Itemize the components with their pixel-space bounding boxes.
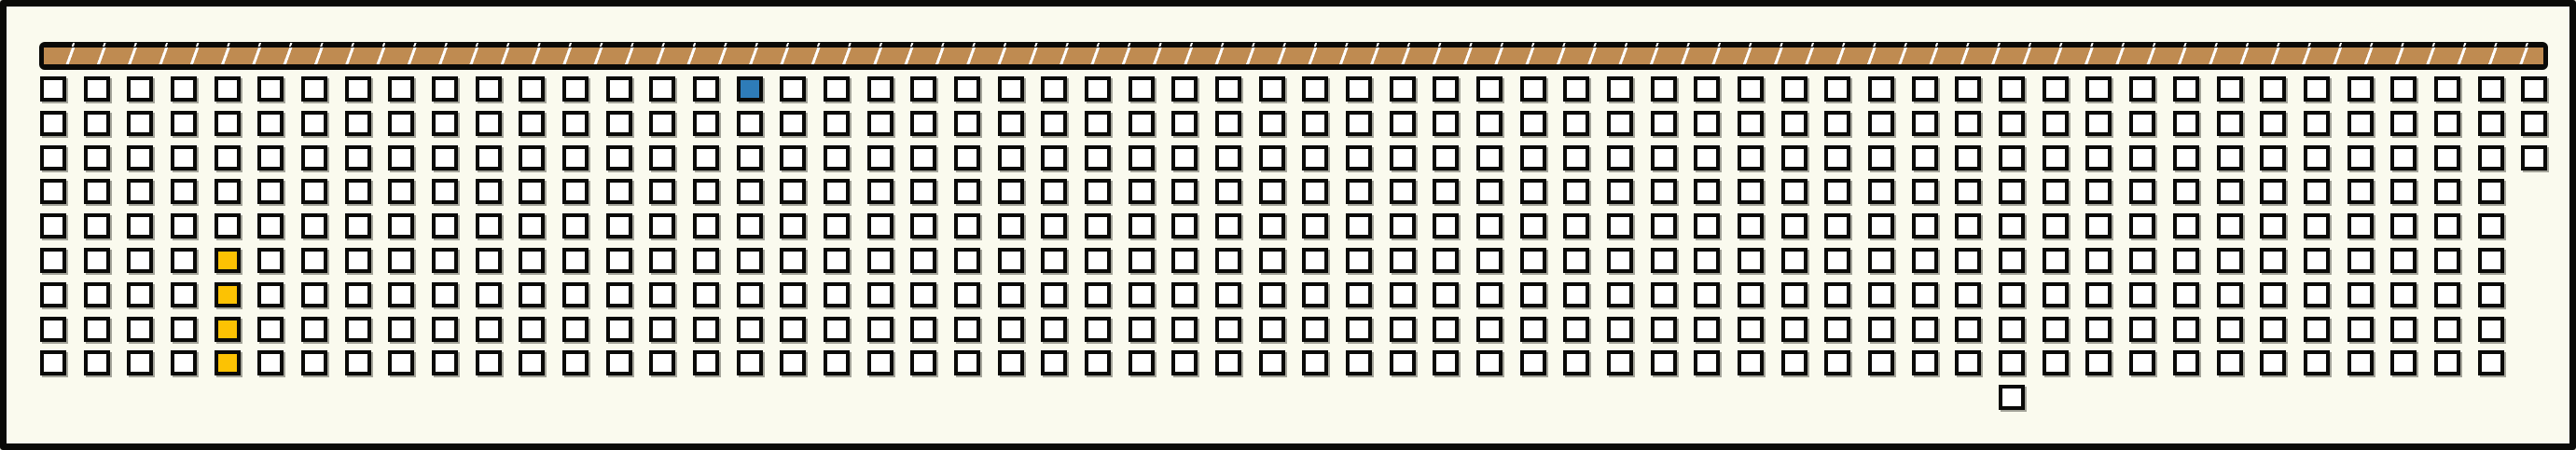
grid-cell[interactable] — [780, 282, 806, 307]
grid-cell[interactable] — [998, 282, 1024, 307]
grid-cell[interactable] — [2043, 179, 2069, 204]
grid-cell[interactable] — [1868, 350, 1894, 375]
grid-cell[interactable] — [432, 76, 458, 102]
grid-cell[interactable] — [998, 179, 1024, 204]
grid-cell[interactable] — [257, 213, 284, 239]
grid-cell[interactable] — [1171, 145, 1198, 170]
grid-cell[interactable] — [1085, 317, 1111, 342]
grid-cell[interactable] — [1390, 111, 1416, 136]
grid-cell[interactable] — [954, 145, 980, 170]
grid-cell[interactable] — [1390, 248, 1416, 273]
grid-cell[interactable] — [2173, 111, 2199, 136]
grid-cell[interactable] — [171, 213, 197, 239]
grid-cell[interactable] — [1912, 145, 1938, 170]
grid-cell[interactable] — [84, 213, 110, 239]
grid-cell[interactable] — [476, 248, 502, 273]
grid-cell[interactable] — [2434, 145, 2460, 170]
grid-cell[interactable] — [954, 111, 980, 136]
grid-cell[interactable] — [2217, 145, 2243, 170]
grid-cell[interactable] — [1824, 248, 1850, 273]
grid-cell[interactable] — [2390, 76, 2417, 102]
grid-cell[interactable] — [824, 282, 850, 307]
grid-cell[interactable] — [910, 317, 936, 342]
grid-cell[interactable] — [1868, 282, 1894, 307]
grid-cell[interactable] — [1651, 282, 1677, 307]
grid-cell[interactable] — [2260, 76, 2286, 102]
grid-cell[interactable] — [693, 317, 719, 342]
grid-cell[interactable] — [824, 213, 850, 239]
grid-cell[interactable] — [345, 282, 371, 307]
grid-cell[interactable] — [867, 282, 893, 307]
grid-cell[interactable] — [2304, 145, 2330, 170]
grid-cell[interactable] — [1085, 179, 1111, 204]
grid-cell[interactable] — [2260, 248, 2286, 273]
grid-cell[interactable] — [693, 145, 719, 170]
grid-cell[interactable] — [1738, 350, 1764, 375]
grid-cell[interactable] — [1346, 179, 1372, 204]
grid-cell[interactable] — [215, 213, 241, 239]
grid-cell[interactable] — [1607, 111, 1633, 136]
grid-cell[interactable] — [910, 179, 936, 204]
grid-cell[interactable] — [649, 76, 675, 102]
grid-cell[interactable] — [432, 111, 458, 136]
grid-cell[interactable] — [1085, 282, 1111, 307]
grid-cell[interactable] — [476, 179, 502, 204]
grid-cell[interactable] — [1215, 248, 1241, 273]
grid-cell[interactable] — [301, 76, 327, 102]
grid-cell[interactable] — [1999, 145, 2025, 170]
grid-cell[interactable] — [345, 213, 371, 239]
grid-cell[interactable] — [1259, 248, 1285, 273]
grid-cell[interactable] — [867, 145, 893, 170]
grid-cell[interactable] — [562, 111, 589, 136]
grid-cell[interactable] — [40, 282, 66, 307]
grid-cell[interactable] — [2390, 350, 2417, 375]
grid-cell[interactable] — [2217, 248, 2243, 273]
grid-cell[interactable] — [1738, 213, 1764, 239]
grid-cell[interactable] — [2478, 76, 2504, 102]
grid-cell[interactable] — [257, 179, 284, 204]
grid-cell[interactable] — [1390, 213, 1416, 239]
grid-cell[interactable] — [2434, 350, 2460, 375]
grid-cell[interactable] — [954, 179, 980, 204]
grid-cell[interactable] — [1476, 111, 1503, 136]
grid-cell[interactable] — [954, 76, 980, 102]
grid-cell[interactable] — [2129, 248, 2155, 273]
grid-cell[interactable] — [1520, 145, 1546, 170]
grid-cell[interactable] — [1651, 179, 1677, 204]
grid-cell[interactable] — [1651, 350, 1677, 375]
grid-cell[interactable] — [2173, 350, 2199, 375]
grid-cell[interactable] — [2304, 248, 2330, 273]
grid-cell[interactable] — [2043, 317, 2069, 342]
grid-cell[interactable] — [84, 76, 110, 102]
grid-cell[interactable] — [780, 145, 806, 170]
grid-cell[interactable] — [649, 282, 675, 307]
grid-cell[interactable] — [40, 248, 66, 273]
grid-cell[interactable] — [1868, 145, 1894, 170]
grid-cell[interactable] — [737, 248, 763, 273]
grid-cell[interactable] — [2085, 350, 2112, 375]
grid-cell[interactable] — [2347, 111, 2374, 136]
grid-cell[interactable] — [910, 282, 936, 307]
grid-cell[interactable] — [84, 248, 110, 273]
grid-cell[interactable] — [2434, 282, 2460, 307]
grid-cell[interactable] — [1781, 213, 1807, 239]
grid-cell[interactable] — [476, 76, 502, 102]
grid-cell[interactable] — [345, 317, 371, 342]
grid-cell[interactable] — [1476, 248, 1503, 273]
grid-cell[interactable] — [693, 248, 719, 273]
grid-cell[interactable] — [171, 282, 197, 307]
grid-cell[interactable] — [824, 145, 850, 170]
grid-cell[interactable] — [2173, 145, 2199, 170]
grid-cell[interactable] — [1476, 317, 1503, 342]
grid-cell[interactable] — [388, 350, 414, 375]
grid-cell[interactable] — [780, 350, 806, 375]
grid-cell[interactable] — [2085, 317, 2112, 342]
grid-cell[interactable] — [1868, 111, 1894, 136]
grid-cell[interactable] — [1824, 350, 1850, 375]
grid-cell[interactable] — [2521, 145, 2547, 170]
grid-cell[interactable] — [867, 350, 893, 375]
grid-cell[interactable] — [2129, 76, 2155, 102]
grid-cell[interactable] — [1781, 76, 1807, 102]
grid-cell[interactable] — [606, 317, 632, 342]
grid-cell[interactable] — [606, 179, 632, 204]
grid-cell[interactable] — [2521, 111, 2547, 136]
grid-cell[interactable] — [1999, 317, 2025, 342]
grid-cell[interactable] — [1955, 145, 1981, 170]
grid-cell[interactable] — [910, 111, 936, 136]
grid-cell[interactable] — [1259, 76, 1285, 102]
grid-cell[interactable] — [388, 145, 414, 170]
grid-cell[interactable] — [2217, 111, 2243, 136]
grid-cell[interactable] — [1302, 282, 1328, 307]
grid-cell[interactable] — [301, 282, 327, 307]
grid-cell[interactable] — [1302, 145, 1328, 170]
grid-cell[interactable] — [2217, 213, 2243, 239]
grid-cell[interactable] — [1129, 213, 1155, 239]
grid-cell[interactable] — [84, 111, 110, 136]
grid-cell[interactable] — [737, 145, 763, 170]
grid-cell[interactable] — [867, 248, 893, 273]
grid-cell[interactable] — [1259, 282, 1285, 307]
grid-cell[interactable] — [171, 76, 197, 102]
grid-cell[interactable] — [388, 248, 414, 273]
grid-cell[interactable] — [2304, 350, 2330, 375]
grid-cell[interactable] — [1824, 317, 1850, 342]
grid-cell[interactable] — [2478, 248, 2504, 273]
grid-cell[interactable] — [2173, 213, 2199, 239]
grid-cell[interactable] — [737, 179, 763, 204]
grid-cell[interactable] — [1433, 179, 1459, 204]
grid-cell[interactable] — [1476, 76, 1503, 102]
grid-cell[interactable] — [780, 76, 806, 102]
grid-cell[interactable] — [649, 350, 675, 375]
grid-cell[interactable] — [215, 179, 241, 204]
grid-cell[interactable] — [476, 213, 502, 239]
grid-cell[interactable] — [780, 213, 806, 239]
grid-cell[interactable] — [1390, 350, 1416, 375]
grid-cell[interactable] — [910, 145, 936, 170]
grid-cell[interactable] — [519, 213, 545, 239]
grid-cell[interactable] — [1955, 76, 1981, 102]
grid-cell[interactable] — [1912, 248, 1938, 273]
grid-cell[interactable] — [127, 213, 153, 239]
grid-cell[interactable] — [1520, 248, 1546, 273]
grid-cell[interactable] — [519, 179, 545, 204]
grid-cell[interactable] — [954, 317, 980, 342]
grid-cell[interactable] — [1955, 282, 1981, 307]
grid-cell[interactable] — [127, 248, 153, 273]
grid-cell[interactable] — [2260, 282, 2286, 307]
grid-cell[interactable] — [2390, 248, 2417, 273]
grid-cell[interactable] — [1520, 282, 1546, 307]
grid-cell[interactable] — [1999, 248, 2025, 273]
grid-cell[interactable] — [562, 248, 589, 273]
grid-cell[interactable] — [2304, 282, 2330, 307]
grid-cell[interactable] — [2085, 248, 2112, 273]
grid-cell[interactable] — [2129, 350, 2155, 375]
grid-cell[interactable] — [127, 111, 153, 136]
grid-cell[interactable] — [2347, 76, 2374, 102]
grid-cell[interactable] — [1302, 213, 1328, 239]
grid-cell[interactable] — [1390, 179, 1416, 204]
grid-cell[interactable] — [1433, 317, 1459, 342]
grid-cell[interactable] — [215, 111, 241, 136]
grid-cell[interactable] — [345, 350, 371, 375]
grid-cell[interactable] — [1651, 248, 1677, 273]
grid-cell[interactable] — [388, 282, 414, 307]
grid-cell[interactable] — [1912, 350, 1938, 375]
grid-cell[interactable] — [301, 111, 327, 136]
grid-cell[interactable] — [910, 76, 936, 102]
grid-cell[interactable] — [476, 111, 502, 136]
grid-cell[interactable] — [780, 111, 806, 136]
grid-cell[interactable] — [1694, 76, 1720, 102]
grid-cell[interactable] — [2304, 111, 2330, 136]
grid-cell[interactable] — [2434, 111, 2460, 136]
grid-cell[interactable] — [2478, 282, 2504, 307]
grid-cell[interactable] — [1476, 282, 1503, 307]
grid-cell[interactable] — [824, 317, 850, 342]
grid-cell[interactable] — [127, 282, 153, 307]
grid-cell[interactable] — [1999, 179, 2025, 204]
grid-cell[interactable] — [1259, 350, 1285, 375]
grid-cell[interactable] — [2173, 179, 2199, 204]
grid-cell[interactable] — [301, 145, 327, 170]
grid-cell[interactable] — [1651, 317, 1677, 342]
grid-cell[interactable] — [2521, 76, 2547, 102]
grid-cell[interactable] — [1433, 350, 1459, 375]
grid-cell[interactable] — [1824, 282, 1850, 307]
grid-cell[interactable] — [1085, 213, 1111, 239]
grid-cell[interactable] — [1259, 111, 1285, 136]
grid-cell[interactable] — [2260, 145, 2286, 170]
grid-cell[interactable] — [1781, 145, 1807, 170]
grid-cell[interactable] — [1171, 282, 1198, 307]
grid-cell[interactable] — [1607, 213, 1633, 239]
grid-cell[interactable] — [649, 145, 675, 170]
grid-cell[interactable] — [2173, 248, 2199, 273]
grid-cell[interactable] — [562, 317, 589, 342]
grid-cell[interactable] — [1738, 282, 1764, 307]
grid-cell[interactable] — [649, 248, 675, 273]
grid-cell[interactable] — [1129, 317, 1155, 342]
grid-cell[interactable] — [1781, 179, 1807, 204]
grid-cell[interactable] — [954, 350, 980, 375]
grid-cell[interactable] — [1041, 76, 1067, 102]
grid-cell[interactable] — [1563, 145, 1589, 170]
grid-cell[interactable] — [1563, 76, 1589, 102]
grid-cell[interactable] — [257, 145, 284, 170]
grid-cell[interactable] — [2085, 76, 2112, 102]
grid-cell[interactable] — [1912, 282, 1938, 307]
grid-cell[interactable] — [998, 76, 1024, 102]
grid-cell[interactable] — [2217, 76, 2243, 102]
grid-cell-yellow[interactable] — [215, 350, 241, 375]
grid-cell[interactable] — [1912, 179, 1938, 204]
grid-cell[interactable] — [1738, 179, 1764, 204]
grid-cell[interactable] — [1433, 145, 1459, 170]
grid-cell[interactable] — [562, 145, 589, 170]
grid-cell[interactable] — [2347, 145, 2374, 170]
grid-cell[interactable] — [1999, 76, 2025, 102]
grid-cell[interactable] — [1520, 213, 1546, 239]
grid-cell[interactable] — [1738, 248, 1764, 273]
grid-cell[interactable] — [2390, 317, 2417, 342]
grid-cell[interactable] — [2085, 145, 2112, 170]
grid-cell[interactable] — [1999, 282, 2025, 307]
grid-cell[interactable] — [2043, 248, 2069, 273]
grid-cell[interactable] — [2390, 145, 2417, 170]
grid-cell[interactable] — [1738, 145, 1764, 170]
grid-cell[interactable] — [1955, 179, 1981, 204]
grid-cell[interactable] — [1215, 350, 1241, 375]
grid-cell[interactable] — [2390, 213, 2417, 239]
grid-cell[interactable] — [693, 350, 719, 375]
grid-cell[interactable] — [1781, 248, 1807, 273]
grid-cell[interactable] — [1171, 248, 1198, 273]
grid-cell[interactable] — [1738, 76, 1764, 102]
grid-cell[interactable] — [1694, 282, 1720, 307]
grid-cell[interactable] — [2129, 282, 2155, 307]
grid-cell[interactable] — [1912, 111, 1938, 136]
grid-cell[interactable] — [1999, 111, 2025, 136]
grid-cell[interactable] — [2347, 213, 2374, 239]
grid-cell[interactable] — [1955, 317, 1981, 342]
grid-cell[interactable] — [1912, 213, 1938, 239]
grid-cell[interactable] — [2085, 179, 2112, 204]
grid-cell[interactable] — [2217, 282, 2243, 307]
grid-cell[interactable] — [2217, 317, 2243, 342]
grid-cell[interactable] — [1433, 282, 1459, 307]
grid-cell[interactable] — [2173, 76, 2199, 102]
grid-cell[interactable] — [1694, 350, 1720, 375]
grid-cell[interactable] — [1390, 282, 1416, 307]
grid-cell[interactable] — [1694, 179, 1720, 204]
grid-cell[interactable] — [1346, 111, 1372, 136]
grid-cell[interactable] — [257, 248, 284, 273]
grid-cell[interactable] — [1868, 76, 1894, 102]
grid-cell[interactable] — [2173, 317, 2199, 342]
grid-cell[interactable] — [476, 282, 502, 307]
grid-cell[interactable] — [1868, 213, 1894, 239]
grid-cell[interactable] — [84, 282, 110, 307]
grid-cell[interactable] — [1955, 248, 1981, 273]
grid-cell[interactable] — [2217, 179, 2243, 204]
grid-cell[interactable] — [1824, 145, 1850, 170]
grid-cell[interactable] — [257, 350, 284, 375]
grid-cell[interactable] — [432, 282, 458, 307]
grid-cell[interactable] — [1085, 111, 1111, 136]
grid-cell[interactable] — [171, 111, 197, 136]
grid-cell[interactable] — [432, 145, 458, 170]
grid-cell[interactable] — [2347, 248, 2374, 273]
grid-cell[interactable] — [606, 282, 632, 307]
grid-cell[interactable] — [1129, 282, 1155, 307]
grid-cell[interactable] — [1912, 317, 1938, 342]
grid-cell[interactable] — [519, 248, 545, 273]
grid-cell[interactable] — [780, 179, 806, 204]
grid-cell[interactable] — [388, 317, 414, 342]
grid-cell[interactable] — [737, 350, 763, 375]
grid-cell[interactable] — [824, 350, 850, 375]
grid-cell[interactable] — [1520, 179, 1546, 204]
grid-cell[interactable] — [910, 248, 936, 273]
grid-cell[interactable] — [1563, 317, 1589, 342]
grid-cell[interactable] — [40, 111, 66, 136]
grid-cell[interactable] — [2434, 248, 2460, 273]
grid-cell[interactable] — [40, 76, 66, 102]
grid-cell[interactable] — [1694, 111, 1720, 136]
grid-cell[interactable] — [1346, 145, 1372, 170]
grid-cell[interactable] — [1433, 76, 1459, 102]
grid-cell[interactable] — [2304, 213, 2330, 239]
grid-cell[interactable] — [127, 350, 153, 375]
grid-cell[interactable] — [1346, 248, 1372, 273]
grid-cell[interactable] — [1694, 145, 1720, 170]
grid-cell[interactable] — [2304, 76, 2330, 102]
grid-cell[interactable] — [867, 179, 893, 204]
grid-cell[interactable] — [345, 145, 371, 170]
grid-cell[interactable] — [1476, 350, 1503, 375]
grid-cell[interactable] — [127, 76, 153, 102]
grid-cell[interactable] — [257, 317, 284, 342]
grid-cell[interactable] — [1607, 179, 1633, 204]
grid-cell[interactable] — [1781, 317, 1807, 342]
grid-cell[interactable] — [1302, 76, 1328, 102]
grid-cell[interactable] — [345, 248, 371, 273]
grid-cell[interactable] — [1085, 350, 1111, 375]
grid-cell[interactable] — [2043, 76, 2069, 102]
grid-cell[interactable] — [476, 350, 502, 375]
grid-cell[interactable] — [2129, 111, 2155, 136]
grid-cell[interactable] — [1694, 213, 1720, 239]
grid-cell[interactable] — [824, 248, 850, 273]
grid-cell[interactable] — [562, 76, 589, 102]
grid-cell[interactable] — [476, 317, 502, 342]
grid-cell[interactable] — [257, 111, 284, 136]
grid-cell[interactable] — [562, 213, 589, 239]
grid-cell[interactable] — [1215, 179, 1241, 204]
grid-cell[interactable] — [1955, 213, 1981, 239]
grid-cell[interactable] — [345, 179, 371, 204]
grid-cell[interactable] — [1607, 317, 1633, 342]
grid-cell[interactable] — [1346, 76, 1372, 102]
grid-cell[interactable] — [693, 111, 719, 136]
